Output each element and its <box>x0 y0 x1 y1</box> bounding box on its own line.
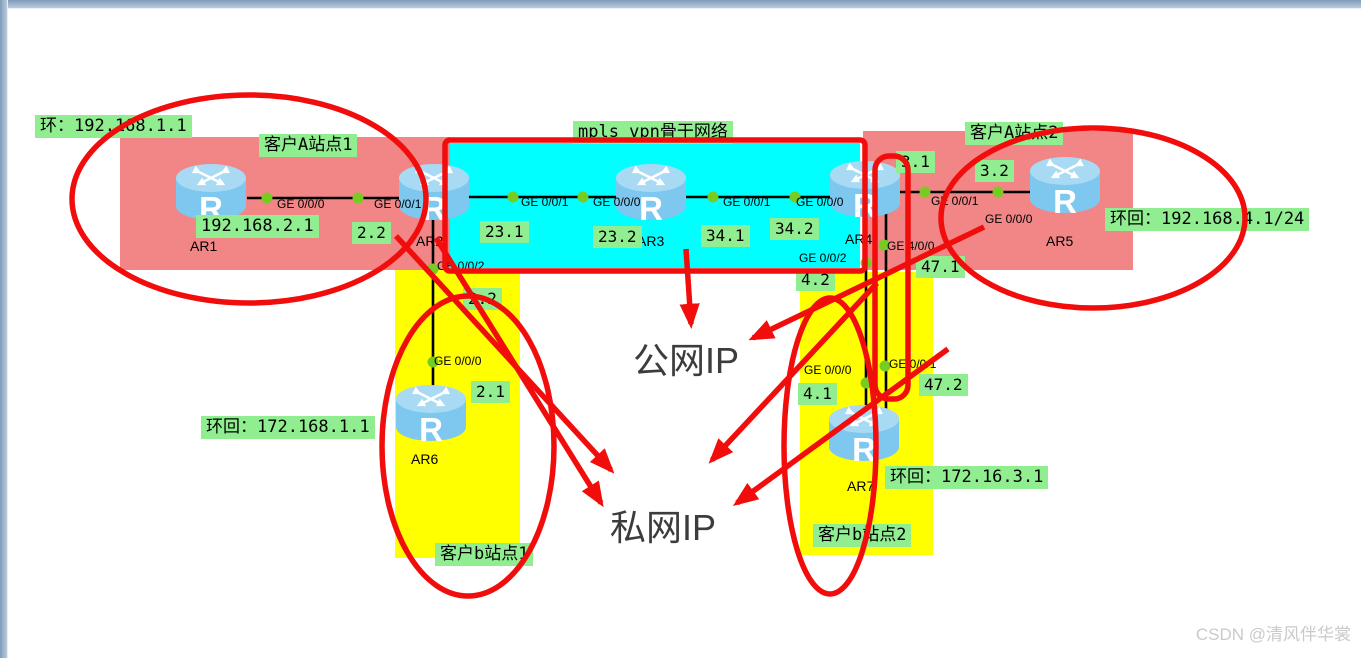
router-ar7[interactable] <box>827 403 901 463</box>
iface-ar4-ge000: GE 0/0/0 <box>796 195 843 209</box>
note-ar5-loopback[interactable]: 环回：192.168.4.1/24 <box>1105 208 1309 231</box>
ip-label-2-2-top[interactable]: 2.2 <box>352 222 391 244</box>
annotation-public-ip: 公网IP <box>633 332 739 384</box>
iface-ar3-ge001: GE 0/0/1 <box>723 195 770 209</box>
ip-label-47-1[interactable]: 47.1 <box>916 256 965 278</box>
note-ar7-loopback[interactable]: 环回：172.16.3.1 <box>885 466 1048 489</box>
note-customer-a-site1[interactable]: 客户A站点1 <box>259 134 357 157</box>
router-ar2-label: AR2 <box>416 233 443 249</box>
note-customer-b-site1[interactable]: 客户b站点1 <box>435 543 533 566</box>
ip-label-4-1[interactable]: 4.1 <box>798 383 837 405</box>
link-layer <box>0 0 1361 658</box>
ip-label-3-1[interactable]: 3.1 <box>896 151 935 173</box>
iface-ar2-ge001-right: GE 0/0/1 <box>521 195 568 209</box>
router-ar3[interactable] <box>614 162 688 222</box>
note-customer-a-site2[interactable]: 客户A站点2 <box>965 122 1063 145</box>
ip-label-4-2[interactable]: 4.2 <box>796 269 835 291</box>
router-ar4-label: AR4 <box>845 231 872 247</box>
note-customer-b-site2[interactable]: 客户b站点2 <box>813 524 911 547</box>
router-ar4[interactable] <box>828 159 902 219</box>
router-ar2[interactable] <box>397 162 471 222</box>
note-ar1-loopback[interactable]: 环：192.168.1.1 <box>35 115 192 138</box>
iface-ar7-ge000: GE 0/0/0 <box>804 363 851 377</box>
csdn-watermark: CSDN @清风伴华裳 <box>1196 620 1351 645</box>
window-top-border <box>0 0 1361 9</box>
router-ar1[interactable] <box>174 162 248 222</box>
iface-ar2-ge001-left: GE 0/0/1 <box>374 197 421 211</box>
annotation-layer <box>0 0 1361 658</box>
note-ar6-loopback[interactable]: 环回：172.168.1.1 <box>201 416 375 439</box>
router-ar5-label: AR5 <box>1046 233 1073 249</box>
router-ar6[interactable] <box>394 383 468 443</box>
ip-label-2-1[interactable]: 2.1 <box>471 381 510 403</box>
ip-label-34-2[interactable]: 34.2 <box>770 218 819 240</box>
topology-canvas: R <box>0 0 1361 658</box>
annotation-private-ip: 私网IP <box>610 499 716 551</box>
ip-label-47-2[interactable]: 47.2 <box>919 374 968 396</box>
ip-label-34-1[interactable]: 34.1 <box>701 225 750 247</box>
router-ar6-label: AR6 <box>411 451 438 467</box>
iface-ar6-ge000: GE 0/0/0 <box>434 354 481 368</box>
iface-ar2-ge002: GE 0/0/2 <box>437 259 484 273</box>
window-left-border <box>0 0 8 658</box>
router-ar5[interactable] <box>1028 155 1102 215</box>
ip-label-23-1[interactable]: 23.1 <box>480 221 529 243</box>
ip-label-2-2-bottom[interactable]: 2.2 <box>463 288 502 310</box>
iface-ar4-ge002: GE 0/0/2 <box>799 251 846 265</box>
iface-ar4-ge400: GE 4/0/0 <box>887 239 934 253</box>
router-ar7-label: AR7 <box>847 478 874 494</box>
ip-label-3-2[interactable]: 3.2 <box>975 160 1014 182</box>
ip-label-23-2[interactable]: 23.2 <box>593 226 642 248</box>
iface-ar1-ge000: GE 0/0/0 <box>277 197 324 211</box>
iface-ar3-ge000: GE 0/0/0 <box>593 195 640 209</box>
note-backbone-title[interactable]: mpls vpn骨干网络 <box>573 121 733 144</box>
iface-ar4-ge001: GE 0/0/1 <box>931 194 978 208</box>
router-ar1-label: AR1 <box>190 238 217 254</box>
note-ar1-network[interactable]: 192.168.2.1 <box>196 215 319 238</box>
iface-ar7-ge001: GE 0/0/1 <box>889 357 936 371</box>
iface-ar5-ge000: GE 0/0/0 <box>985 212 1032 226</box>
